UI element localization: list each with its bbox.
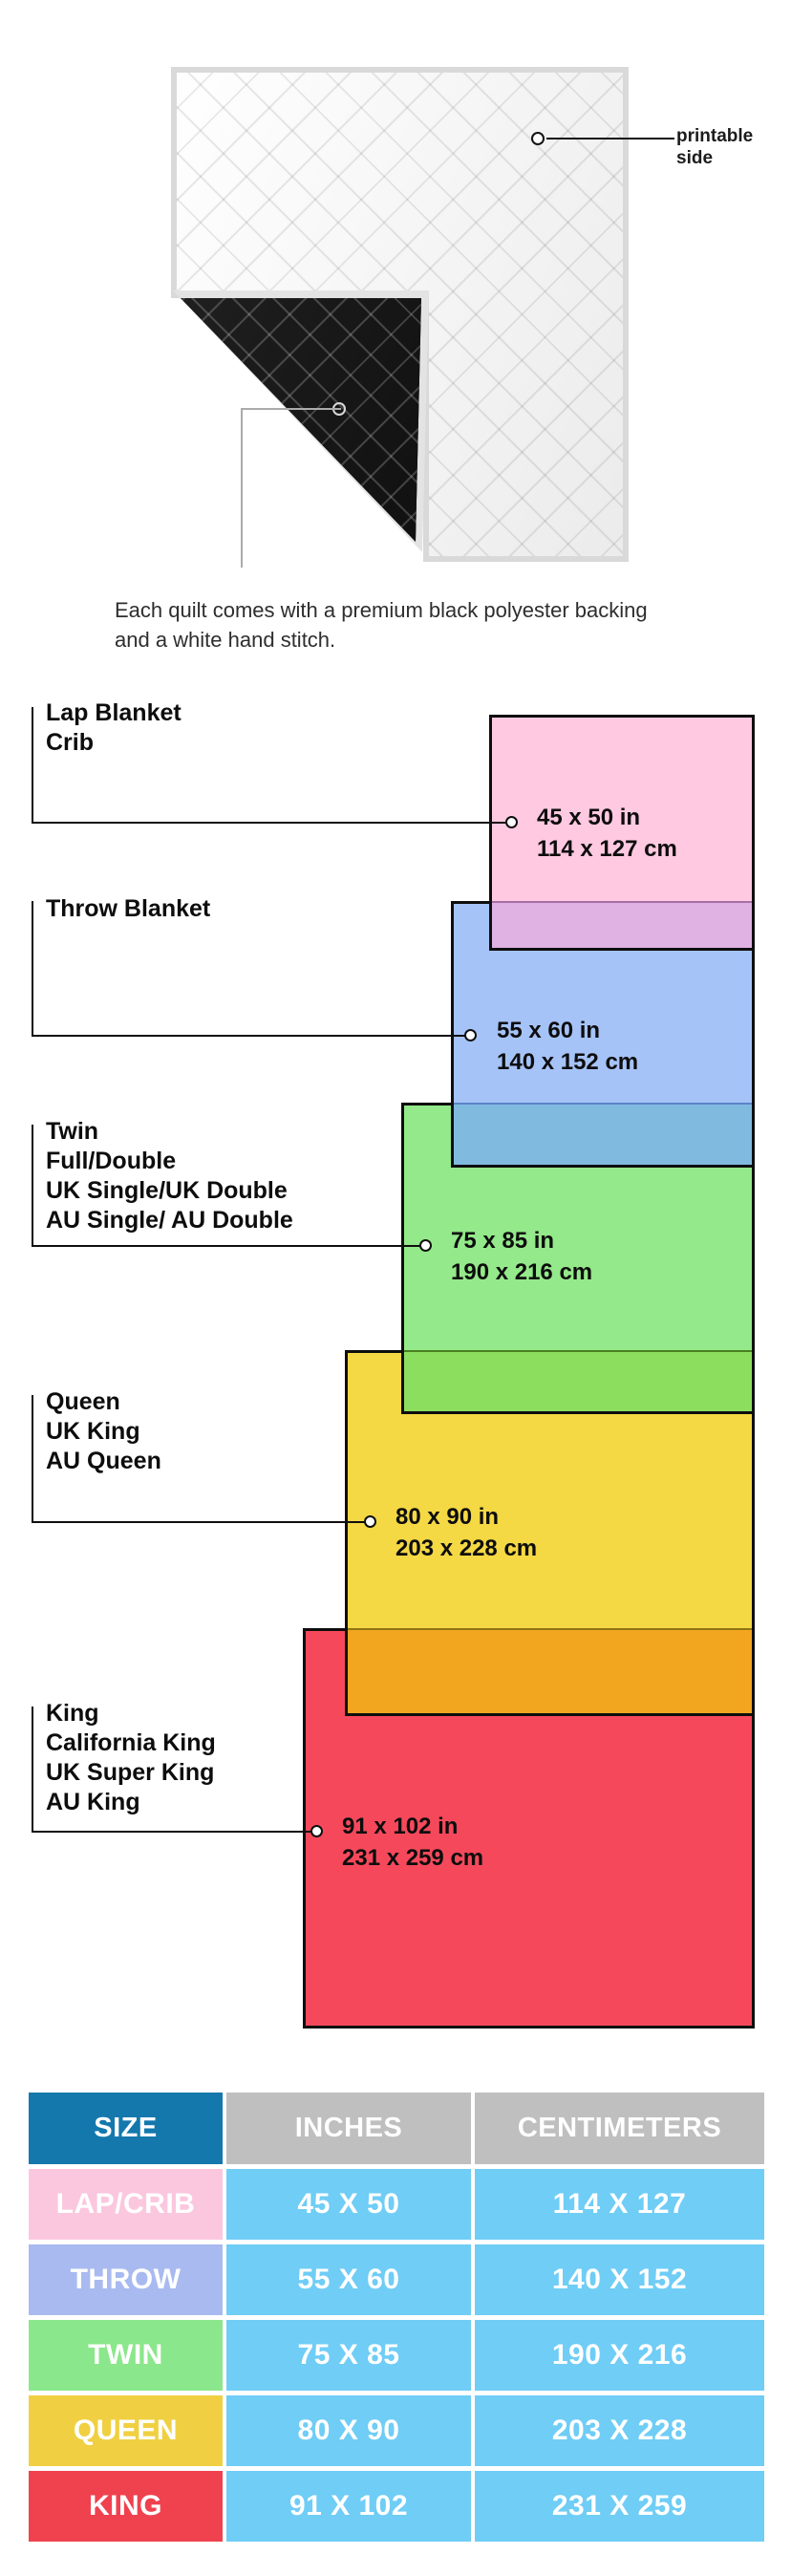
table-row-queen-size: QUEEN [29,2395,223,2466]
queen-callout-ring [364,1515,376,1528]
table-header-inches: INCHES [226,2093,471,2164]
table-header-size: SIZE [29,2093,223,2164]
table-row-throw-cm: 140 X 152 [475,2244,764,2315]
table-row-king-inches: 91 X 102 [226,2471,471,2542]
table-row-lap-size: LAP/CRIB [29,2169,223,2240]
size-table: SIZE INCHES CENTIMETERS LAP/CRIB 45 X 50… [29,2093,764,2542]
king-dimensions: 91 x 102 in 231 x 259 cm [342,1811,483,1874]
throw-callout-ring [464,1029,477,1041]
lap-callout-ring [505,816,518,828]
lap-dimensions: 45 x 50 in 114 x 127 cm [537,802,677,865]
lap-labels: Lap Blanket Crib [46,698,182,758]
king-callout-ring [310,1825,323,1837]
table-row-lap-cm: 114 X 127 [475,2169,764,2240]
table-row-queen-inches: 80 X 90 [226,2395,471,2466]
printable-side-callout-line [546,138,674,140]
quilt-photo [171,67,629,562]
lap-over-throw-overlap [492,901,752,948]
throw-dimensions: 55 x 60 in 140 x 152 cm [497,1015,638,1078]
table-row-queen-cm: 203 X 228 [475,2395,764,2466]
twin-dimensions: 75 x 85 in 190 x 216 cm [451,1225,592,1288]
throw-over-twin-overlap [454,1103,752,1165]
king-labels: King California King UK Super King AU Ki… [46,1699,216,1817]
table-row-lap-inches: 45 X 50 [226,2169,471,2240]
table-row-king-size: KING [29,2471,223,2542]
queen-dimensions: 80 x 90 in 203 x 228 cm [395,1501,537,1564]
table-row-throw-inches: 55 X 60 [226,2244,471,2315]
backing-caption: Each quilt comes with a premium black po… [115,595,652,655]
table-row-twin-cm: 190 X 216 [475,2320,764,2391]
queen-over-king-overlap [348,1628,752,1713]
table-row-twin-inches: 75 X 85 [226,2320,471,2391]
twin-callout-ring [419,1239,432,1252]
printable-side-callout-ring [531,132,545,145]
table-row-twin-size: TWIN [29,2320,223,2391]
table-row-throw-size: THROW [29,2244,223,2315]
table-row-king-cm: 231 X 259 [475,2471,764,2542]
queen-labels: Queen UK King AU Queen [46,1387,161,1476]
twin-labels: Twin Full/Double UK Single/UK Double AU … [46,1117,293,1235]
throw-labels: Throw Blanket [46,894,210,924]
twin-over-queen-overlap [404,1350,752,1411]
printable-side-label: printable side [676,125,753,169]
quilt-size-infographic: printable side Each quilt comes with a p… [0,0,791,2576]
table-header-centimeters: CENTIMETERS [475,2093,764,2164]
backing-callout-line [241,408,341,568]
